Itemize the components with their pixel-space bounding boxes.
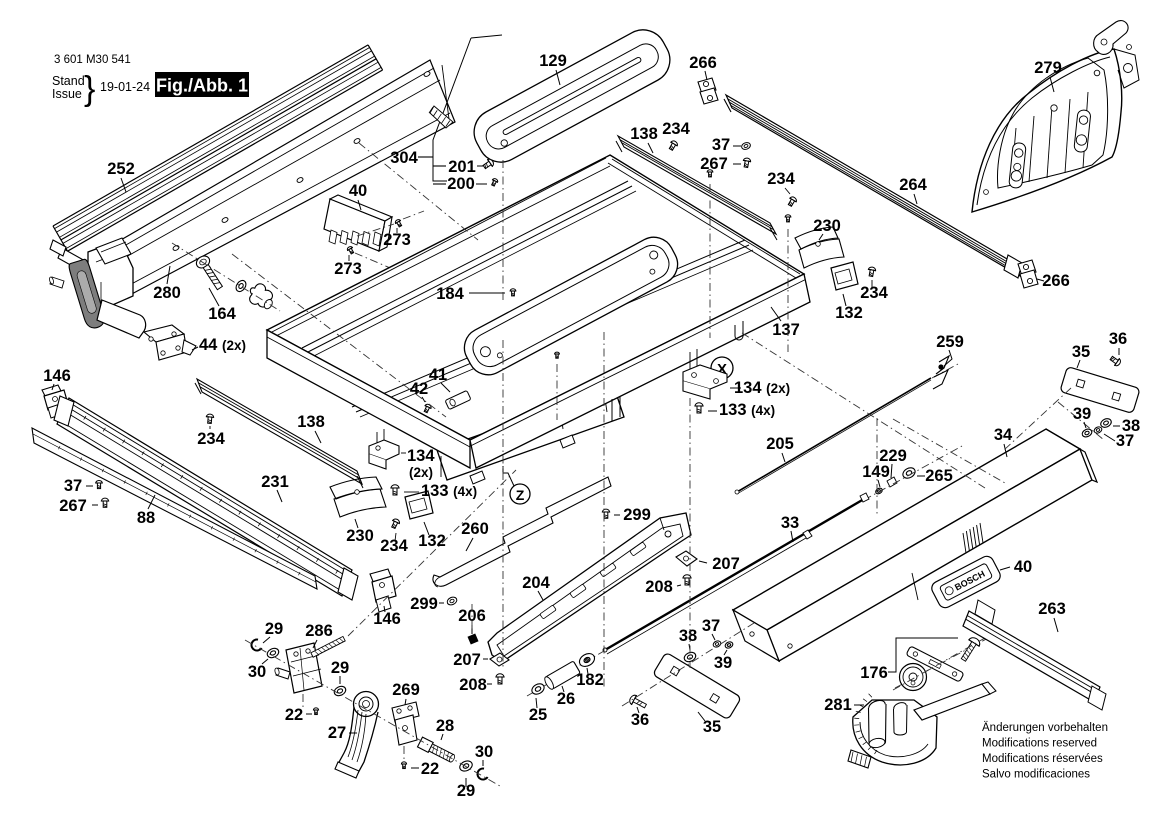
svg-text:182: 182 xyxy=(576,671,604,689)
svg-text:234: 234 xyxy=(197,430,225,448)
svg-text:39: 39 xyxy=(714,654,732,672)
svg-text:37: 37 xyxy=(1116,432,1134,450)
svg-text:200: 200 xyxy=(447,175,475,193)
svg-text:Modifications réservées: Modifications réservées xyxy=(982,753,1103,765)
svg-text:Issue: Issue xyxy=(52,87,82,101)
svg-text:286: 286 xyxy=(305,622,333,640)
svg-text:25: 25 xyxy=(529,706,547,724)
svg-text:28: 28 xyxy=(436,717,454,735)
svg-text:3 601 M30 541: 3 601 M30 541 xyxy=(54,54,131,66)
svg-text:(2x): (2x) xyxy=(222,338,246,353)
svg-text:266: 266 xyxy=(1042,272,1070,290)
svg-text:280: 280 xyxy=(153,284,181,302)
svg-text:279: 279 xyxy=(1034,59,1062,77)
svg-text:88: 88 xyxy=(137,509,155,527)
svg-text:(2x): (2x) xyxy=(409,465,433,480)
svg-text:137: 137 xyxy=(772,321,800,339)
svg-text:Stand: Stand xyxy=(52,74,85,88)
svg-text:299: 299 xyxy=(623,506,651,524)
svg-text:132: 132 xyxy=(418,532,446,550)
svg-text:164: 164 xyxy=(208,305,236,323)
svg-text:27: 27 xyxy=(328,724,346,742)
svg-text:44: 44 xyxy=(199,336,218,354)
svg-text:37: 37 xyxy=(702,617,720,635)
svg-text:35: 35 xyxy=(1072,343,1090,361)
svg-text:39: 39 xyxy=(1073,405,1091,423)
svg-text:207: 207 xyxy=(712,555,740,573)
svg-text:134: 134 xyxy=(407,447,435,465)
svg-text:38: 38 xyxy=(679,627,697,645)
svg-text:29: 29 xyxy=(331,659,349,677)
svg-text:201: 201 xyxy=(448,158,476,176)
svg-text:146: 146 xyxy=(43,367,71,385)
svg-text:234: 234 xyxy=(380,537,408,555)
svg-text:19-01-24: 19-01-24 xyxy=(100,80,150,94)
svg-text:208: 208 xyxy=(459,676,487,694)
svg-text:263: 263 xyxy=(1038,600,1066,618)
svg-text:33: 33 xyxy=(781,514,799,532)
svg-text:273: 273 xyxy=(334,260,362,278)
svg-text:230: 230 xyxy=(813,217,841,235)
svg-text:265: 265 xyxy=(925,467,953,485)
svg-text:138: 138 xyxy=(297,413,325,431)
svg-text:146: 146 xyxy=(373,610,401,628)
svg-text:40: 40 xyxy=(1014,558,1032,576)
svg-text:267: 267 xyxy=(59,497,87,515)
svg-text:149: 149 xyxy=(862,463,890,481)
svg-text:129: 129 xyxy=(539,52,567,70)
svg-text:22: 22 xyxy=(421,760,439,778)
svg-text:207: 207 xyxy=(453,651,481,669)
svg-text:267: 267 xyxy=(700,155,728,173)
svg-text:(4x): (4x) xyxy=(751,403,775,418)
svg-text:269: 269 xyxy=(392,681,420,699)
svg-text:208: 208 xyxy=(645,578,673,596)
svg-text:133: 133 xyxy=(421,482,449,500)
svg-text:30: 30 xyxy=(248,663,266,681)
svg-text:Z: Z xyxy=(516,487,525,503)
svg-text:260: 260 xyxy=(461,520,489,538)
svg-text:304: 304 xyxy=(390,149,418,167)
svg-text:134: 134 xyxy=(734,379,762,397)
svg-text:176: 176 xyxy=(860,664,888,682)
svg-text:281: 281 xyxy=(824,696,852,714)
svg-text:230: 230 xyxy=(346,527,374,545)
svg-text:Fig./Abb. 1: Fig./Abb. 1 xyxy=(156,76,248,96)
svg-text:234: 234 xyxy=(662,120,690,138)
svg-text:264: 264 xyxy=(899,176,927,194)
svg-text:205: 205 xyxy=(766,435,794,453)
svg-text:259: 259 xyxy=(936,333,964,351)
svg-text:41: 41 xyxy=(429,366,447,384)
svg-text:35: 35 xyxy=(703,718,721,736)
svg-text:30: 30 xyxy=(475,743,493,761)
svg-text:36: 36 xyxy=(1109,330,1127,348)
svg-text:37: 37 xyxy=(64,477,82,495)
svg-text:234: 234 xyxy=(767,170,795,188)
svg-text:29: 29 xyxy=(265,620,283,638)
svg-text:252: 252 xyxy=(107,160,135,178)
svg-text:34: 34 xyxy=(994,426,1013,444)
svg-text:26: 26 xyxy=(557,690,575,708)
svg-text:266: 266 xyxy=(689,54,717,72)
svg-text:(4x): (4x) xyxy=(453,484,477,499)
svg-text:138: 138 xyxy=(630,125,658,143)
svg-text:37: 37 xyxy=(712,136,730,154)
svg-text:184: 184 xyxy=(436,285,464,303)
svg-text:299: 299 xyxy=(410,595,438,613)
svg-text:Modifications reserved: Modifications reserved xyxy=(982,738,1097,750)
svg-text:(2x): (2x) xyxy=(766,381,790,396)
svg-text:40: 40 xyxy=(349,182,367,200)
svg-text:Änderungen vorbehalten: Änderungen vorbehalten xyxy=(982,722,1108,734)
svg-text:42: 42 xyxy=(410,380,428,398)
svg-text:231: 231 xyxy=(261,473,289,491)
svg-text:Salvo modificaciones: Salvo modificaciones xyxy=(982,769,1090,781)
svg-text:234: 234 xyxy=(860,284,888,302)
svg-text:36: 36 xyxy=(631,711,649,729)
svg-text:22: 22 xyxy=(285,706,303,724)
svg-text:133: 133 xyxy=(719,401,747,419)
svg-text:}: } xyxy=(84,70,95,108)
svg-text:273: 273 xyxy=(383,231,411,249)
svg-text:132: 132 xyxy=(835,304,863,322)
svg-text:204: 204 xyxy=(522,574,550,592)
